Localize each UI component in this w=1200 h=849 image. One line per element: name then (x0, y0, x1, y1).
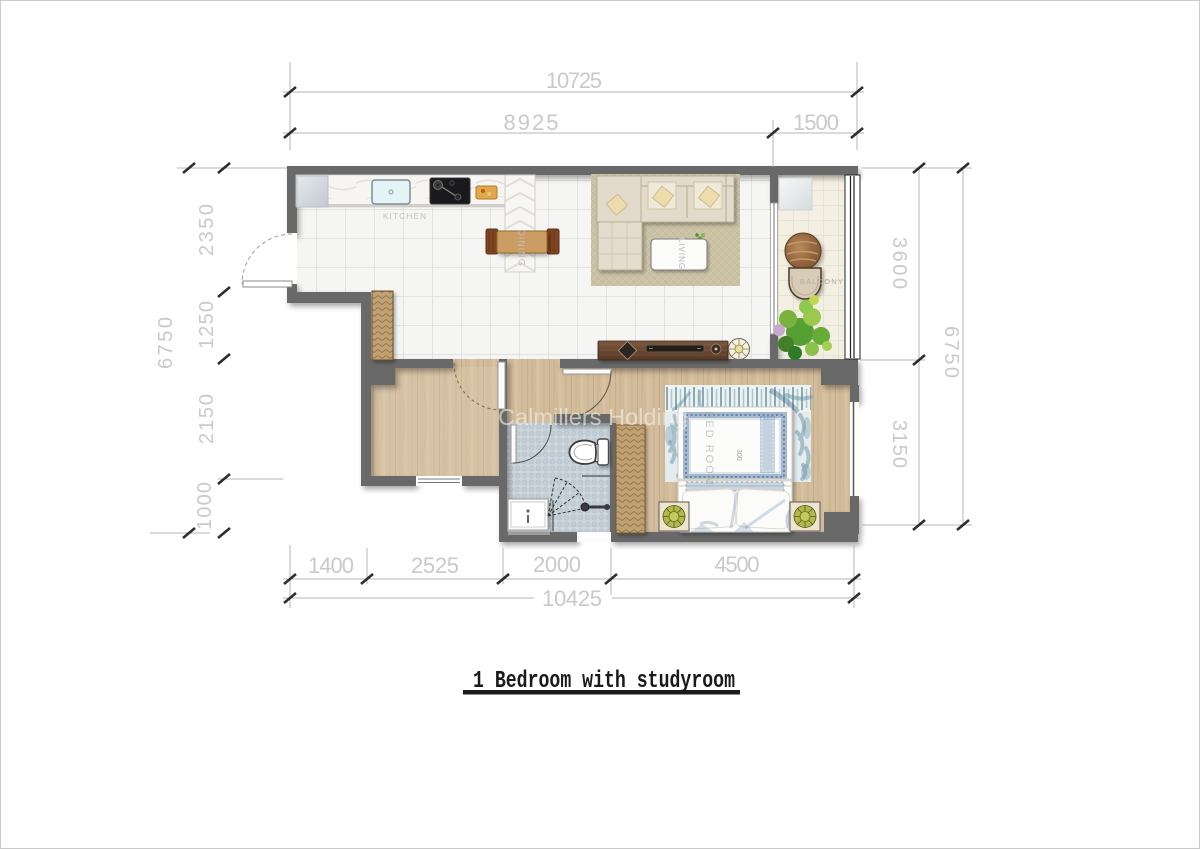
svg-text:2000: 2000 (533, 552, 581, 577)
svg-text:1250: 1250 (196, 301, 218, 349)
svg-text:BED ROOM: BED ROOM (703, 411, 715, 487)
svg-text:1000: 1000 (194, 482, 216, 530)
svg-text:1400: 1400 (308, 553, 354, 578)
svg-text:4500: 4500 (715, 552, 760, 577)
svg-text:BALCONY: BALCONY (800, 277, 844, 286)
svg-text:Calmillers Holding: Calmillers Holding (498, 404, 688, 430)
svg-text:DINING: DINING (517, 229, 527, 267)
svg-text:2150: 2150 (196, 394, 218, 444)
svg-text:10425: 10425 (542, 586, 602, 611)
svg-text:1500: 1500 (793, 110, 839, 135)
svg-text:10725: 10725 (546, 68, 602, 93)
svg-text:3150: 3150 (888, 420, 910, 468)
svg-text:KITCHEN: KITCHEN (383, 211, 427, 221)
svg-text:2525: 2525 (411, 553, 459, 578)
svg-text:LIVING: LIVING (677, 238, 686, 270)
svg-text:300: 300 (735, 449, 742, 461)
